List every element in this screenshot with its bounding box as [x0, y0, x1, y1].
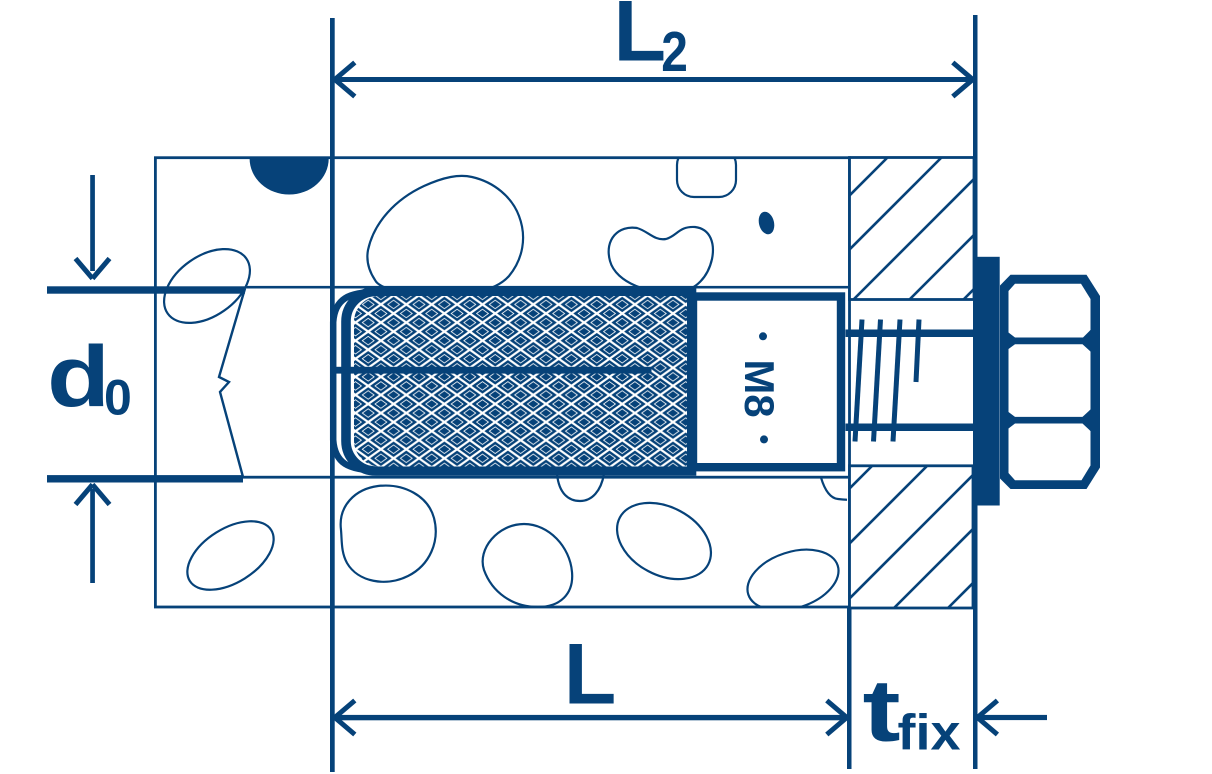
- svg-text:2: 2: [661, 20, 688, 84]
- svg-text:fix: fix: [898, 705, 961, 761]
- svg-text:t: t: [863, 661, 901, 759]
- svg-text:M8: M8: [736, 359, 783, 417]
- svg-text:L: L: [614, 0, 667, 80]
- svg-text:0: 0: [104, 370, 132, 426]
- svg-text:d: d: [47, 329, 110, 425]
- svg-text:L: L: [564, 627, 617, 723]
